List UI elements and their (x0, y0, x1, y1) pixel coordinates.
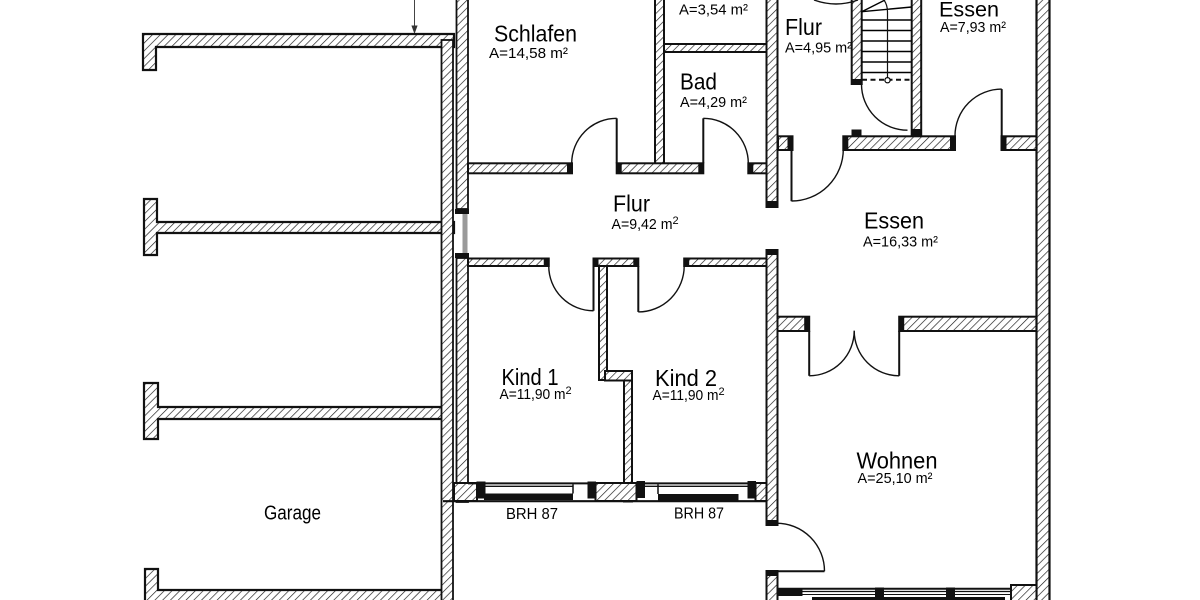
svg-text:A=16,33 m²: A=16,33 m² (863, 234, 938, 251)
svg-text:BRH 87: BRH 87 (674, 506, 724, 523)
svg-text:A=14,58 m²: A=14,58 m² (489, 45, 568, 62)
svg-text:A=7,93 m²: A=7,93 m² (940, 19, 1006, 36)
svg-text:Flur: Flur (785, 14, 822, 40)
svg-text:Flur: Flur (613, 191, 650, 217)
svg-text:A=25,10 m²: A=25,10 m² (858, 470, 933, 487)
svg-text:Schlafen: Schlafen (494, 21, 577, 47)
svg-text:Garage: Garage (264, 502, 321, 524)
svg-text:A=4,29 m²: A=4,29 m² (680, 94, 747, 111)
svg-text:A=9,42 m2: A=9,42 m2 (612, 215, 679, 233)
svg-text:Bad: Bad (680, 69, 717, 95)
svg-text:A=11,90 m2: A=11,90 m2 (500, 385, 572, 403)
svg-text:A=3,54 m²: A=3,54 m² (679, 2, 748, 19)
svg-text:Essen: Essen (864, 208, 924, 234)
svg-text:A=4,95 m²: A=4,95 m² (785, 39, 852, 56)
svg-text:BRH 87: BRH 87 (506, 506, 558, 523)
svg-text:A=11,90 m2: A=11,90 m2 (653, 386, 725, 404)
